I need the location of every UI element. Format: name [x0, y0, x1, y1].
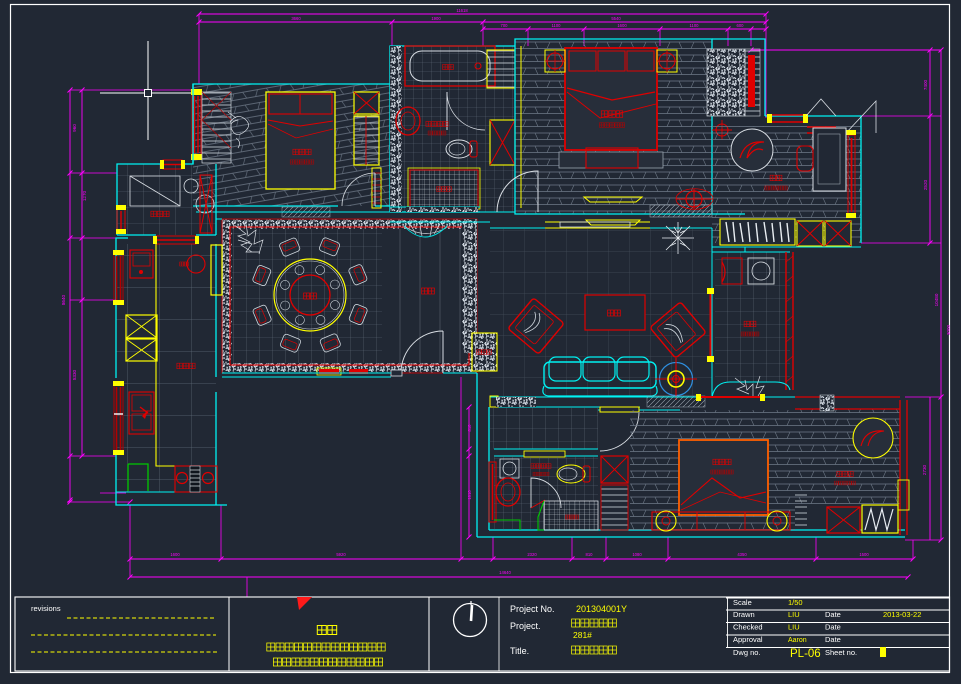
svg-text:2320: 2320 — [527, 552, 537, 557]
svg-text:1900: 1900 — [431, 16, 441, 21]
svg-text:3660: 3660 — [291, 16, 301, 21]
svg-text:11618: 11618 — [456, 8, 468, 13]
svg-text:1100: 1100 — [689, 23, 699, 28]
svg-text:8640: 8640 — [61, 294, 66, 305]
svg-text:3000: 3000 — [946, 324, 951, 335]
svg-text:Project.: Project. — [510, 621, 541, 631]
svg-text:Date: Date — [825, 610, 841, 619]
svg-text:1100: 1100 — [551, 23, 561, 28]
svg-text:PL-06: PL-06 — [790, 648, 821, 660]
svg-text:Checked: Checked — [733, 623, 763, 632]
svg-text:5330: 5330 — [72, 369, 77, 380]
svg-text:7400: 7400 — [923, 79, 928, 90]
svg-text:2520: 2520 — [923, 179, 928, 190]
svg-text:Project No.: Project No. — [510, 604, 555, 614]
svg-text:1080: 1080 — [632, 552, 642, 557]
svg-text:revisions: revisions — [31, 604, 61, 613]
svg-text:700: 700 — [501, 23, 509, 28]
svg-text:Date: Date — [825, 623, 841, 632]
svg-text:1610: 1610 — [467, 490, 472, 500]
svg-text:14640: 14640 — [499, 570, 511, 575]
svg-text:Scale: Scale — [733, 598, 752, 607]
svg-text:5540: 5540 — [611, 16, 621, 21]
svg-text:2013-03-22: 2013-03-22 — [883, 610, 921, 619]
svg-text:Title.: Title. — [510, 646, 529, 656]
svg-text:Sheet no.: Sheet no. — [825, 648, 857, 657]
svg-text:1500: 1500 — [859, 552, 869, 557]
svg-text:600: 600 — [737, 23, 745, 28]
svg-text:4350: 4350 — [737, 552, 747, 557]
svg-text:960: 960 — [72, 124, 77, 132]
svg-text:LIU: LIU — [788, 623, 800, 632]
svg-text:1600: 1600 — [617, 23, 627, 28]
svg-text:810: 810 — [467, 424, 472, 432]
svg-text:1600: 1600 — [170, 552, 180, 557]
svg-text:281#: 281# — [573, 630, 592, 640]
svg-text:2730: 2730 — [922, 464, 927, 475]
svg-text:201304001Y: 201304001Y — [576, 604, 627, 614]
svg-text:5920: 5920 — [336, 552, 346, 557]
svg-text:810: 810 — [586, 552, 594, 557]
svg-text:Date: Date — [825, 635, 841, 644]
svg-text:Approval: Approval — [733, 635, 763, 644]
svg-text:LIU: LIU — [788, 610, 800, 619]
svg-text:Dwg no.: Dwg no. — [733, 648, 761, 657]
svg-text:Drawn: Drawn — [733, 610, 755, 619]
svg-text:1/50: 1/50 — [788, 598, 803, 607]
svg-text:10480: 10480 — [934, 293, 939, 306]
svg-text:1270: 1270 — [82, 190, 87, 201]
svg-text:Aaron: Aaron — [788, 637, 807, 644]
